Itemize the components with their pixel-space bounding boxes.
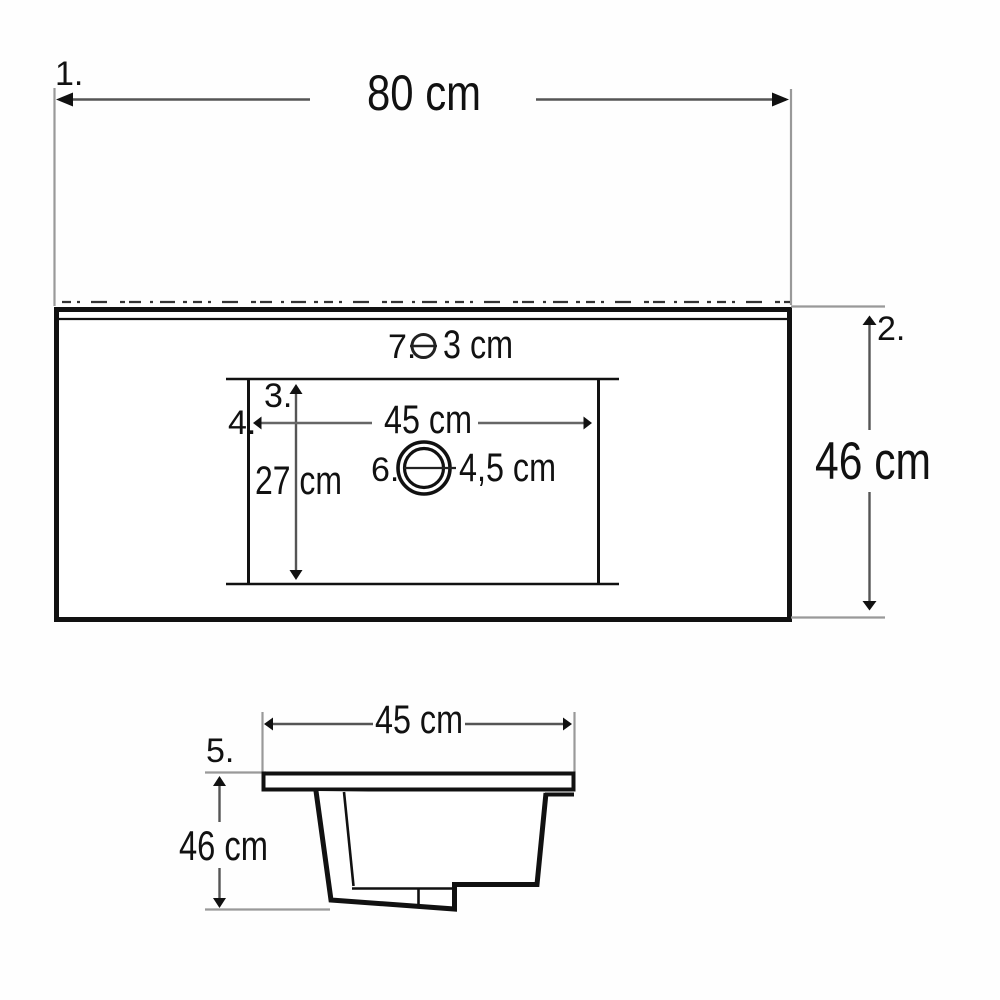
svg-text:27 cm: 27 cm bbox=[255, 459, 342, 503]
svg-text:5.: 5. bbox=[206, 732, 234, 770]
svg-text:46 cm: 46 cm bbox=[179, 822, 268, 869]
svg-text:3 cm: 3 cm bbox=[443, 323, 513, 367]
svg-text:46 cm: 46 cm bbox=[815, 432, 931, 491]
svg-text:3.: 3. bbox=[264, 377, 292, 415]
svg-text:1.: 1. bbox=[55, 55, 83, 93]
svg-text:45 cm: 45 cm bbox=[384, 398, 472, 442]
svg-text:2.: 2. bbox=[877, 310, 905, 348]
svg-text:4,5 cm: 4,5 cm bbox=[459, 446, 556, 490]
svg-text:45 cm: 45 cm bbox=[375, 698, 463, 742]
svg-text:6.: 6. bbox=[371, 451, 399, 489]
svg-text:80 cm: 80 cm bbox=[367, 65, 481, 121]
svg-text:4.: 4. bbox=[228, 404, 256, 442]
